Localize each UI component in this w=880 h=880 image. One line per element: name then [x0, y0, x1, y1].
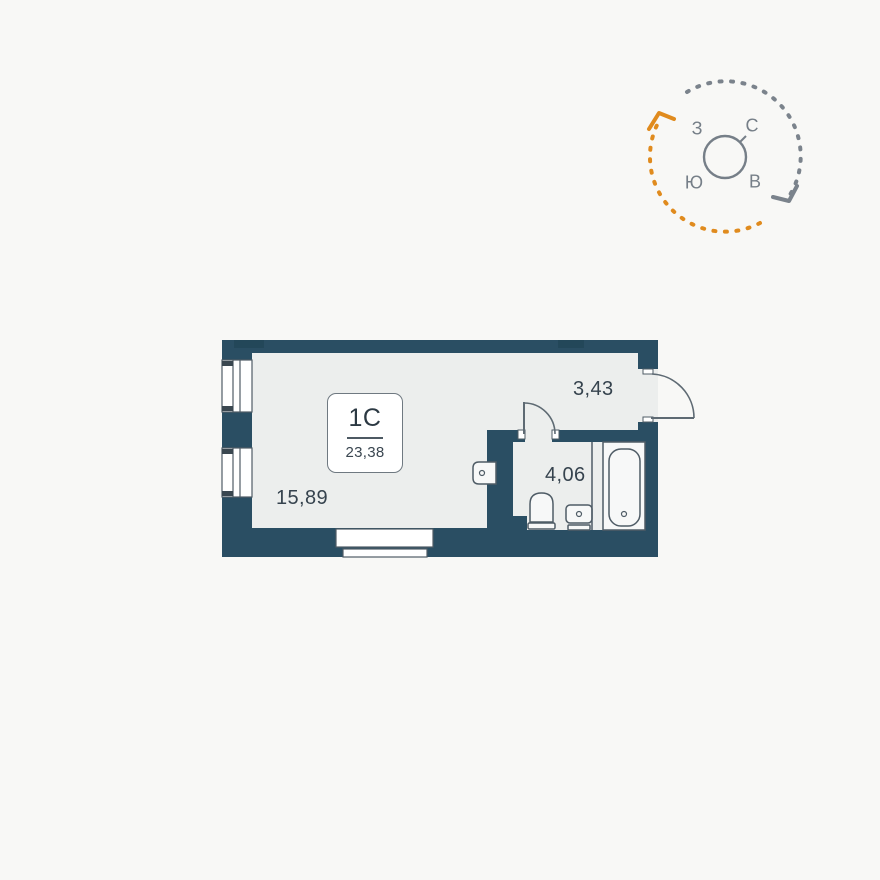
wall-left-bottom — [222, 497, 252, 557]
compass-west-label: З — [692, 119, 703, 140]
wall-right-lower — [645, 422, 658, 557]
wall-bottom — [222, 528, 658, 557]
unit-total-area: 23,38 — [345, 445, 384, 460]
window-icon-1 — [222, 360, 252, 412]
compass-south-label: Ю — [685, 173, 703, 194]
compass-east-label: В — [749, 172, 761, 193]
bathroom-area-label: 4,06 — [545, 464, 586, 487]
floor-plan-page: 15,89 3,43 4,06 1С 23,38 З С Ю В — [0, 0, 880, 880]
gray-arrowhead-icon — [773, 186, 797, 201]
wall-left-mid — [222, 412, 252, 448]
north-tick-icon — [740, 136, 746, 142]
unit-label-card: 1С 23,38 — [327, 393, 403, 473]
toilet-icon — [528, 493, 555, 529]
compass-circle — [704, 136, 746, 178]
unit-type-label: 1С — [349, 406, 382, 431]
compass-north-label: С — [746, 116, 759, 137]
entrance-door-icon — [643, 369, 694, 422]
compass-icon — [649, 81, 801, 231]
window-icon-2 — [222, 448, 252, 497]
orange-arrowhead-icon — [649, 113, 674, 129]
pier-above-door — [638, 353, 658, 369]
living-room-area-label: 15,89 — [276, 487, 328, 510]
hallway-area-label: 3,43 — [573, 378, 614, 401]
vent-mark-left — [234, 340, 264, 348]
unit-card-divider — [347, 437, 383, 439]
window-icon-bottom — [336, 529, 433, 557]
gray-rotation-arc-icon — [687, 81, 801, 198]
bathroom-door-opening — [525, 430, 552, 442]
kitchen-sink-icon — [473, 462, 496, 484]
bathroom-wall-step — [513, 516, 527, 530]
bathtub-icon — [603, 442, 645, 530]
vent-mark-right — [558, 340, 584, 348]
wall-top — [222, 340, 658, 353]
sink-icon — [566, 505, 592, 530]
